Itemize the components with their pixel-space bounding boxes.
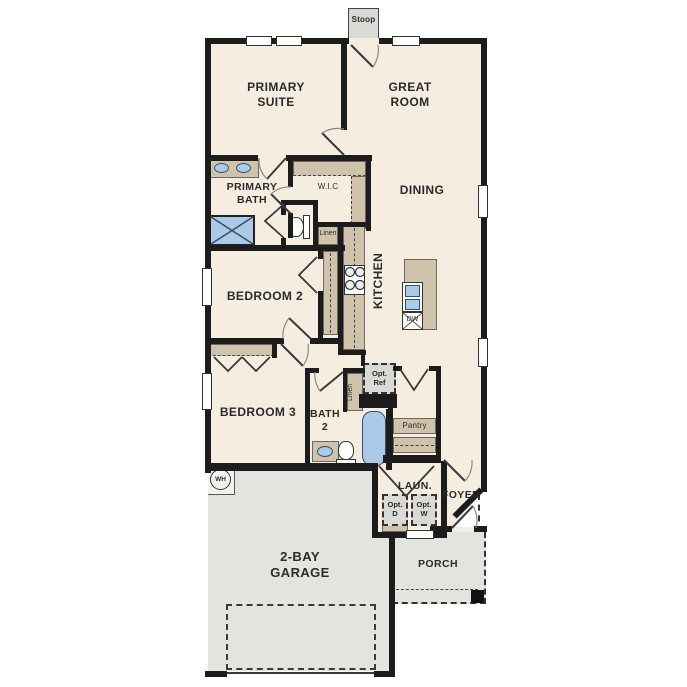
- window: [202, 268, 212, 306]
- room-label-kitchen: KITCHEN: [371, 246, 388, 316]
- island-sink-basin-2: [405, 299, 420, 310]
- garage-door-line: [227, 672, 374, 674]
- vanity-sink-left: [214, 163, 229, 173]
- opt-washer-label: Opt. W: [417, 501, 432, 518]
- wall-segment: [315, 222, 371, 227]
- window: [478, 338, 488, 367]
- wall-segment: [205, 671, 227, 677]
- wall-segment: [338, 225, 343, 350]
- floor-plan: WH Opt. Ref Opt. D Opt. W: [0, 0, 687, 687]
- wall-segment: [286, 155, 372, 161]
- stove: [344, 265, 365, 295]
- room-label-stoop: Stoop: [348, 15, 379, 25]
- optional-washer: Opt. W: [411, 494, 437, 526]
- wall-segment: [481, 38, 487, 492]
- room-label-primary-bath: PRIMARY BATH: [212, 181, 292, 207]
- room-label-garage: 2-BAY GARAGE: [250, 549, 350, 582]
- wall-segment: [361, 350, 365, 366]
- water-heater: WH: [210, 469, 231, 490]
- window: [392, 36, 420, 46]
- toilet-primary-tank: [303, 215, 310, 239]
- room-label-pantry: Pantry: [393, 421, 436, 431]
- room-label-foyer: FOYER: [436, 489, 486, 502]
- closet-label-linen-hall: Linen: [318, 230, 338, 239]
- laundry-threshold: [406, 530, 434, 539]
- wall-segment: [372, 463, 378, 538]
- porch-inner-dashed: [396, 589, 478, 590]
- wall-segment: [389, 532, 395, 677]
- wall-segment: [366, 161, 371, 231]
- wall-segment: [205, 245, 345, 251]
- window: [478, 185, 488, 218]
- optional-refrigerator: Opt. Ref: [363, 363, 396, 394]
- island-sink-basin-1: [405, 285, 420, 297]
- wall-segment: [474, 526, 487, 532]
- bedroom3-closet: [208, 344, 274, 356]
- wall-segment: [318, 291, 323, 343]
- room-label-great-room: GREAT ROOM: [375, 80, 445, 110]
- room-label-bedroom2: BEDROOM 2: [215, 289, 315, 304]
- room-label-wic: W.I.C: [303, 182, 353, 192]
- room-label-bath2: BATH 2: [305, 408, 345, 434]
- toilet-bath2-bowl: [338, 441, 354, 460]
- bedroom2-closet-rod: [330, 253, 331, 333]
- vanity-sink-right: [236, 163, 251, 173]
- wall-segment: [205, 155, 258, 161]
- wall-segment: [305, 368, 319, 373]
- wall-segment: [313, 205, 318, 248]
- wall-segment: [310, 338, 343, 344]
- closet-label-linen-bath: Linen: [347, 374, 363, 410]
- appliance-label-dw: DW: [403, 316, 422, 325]
- wall-segment: [393, 366, 402, 371]
- wic-shelf-top: [293, 161, 366, 176]
- wall-segment: [388, 400, 393, 463]
- pantry-shelf-line: [395, 445, 434, 446]
- water-heater-label: WH: [215, 476, 226, 483]
- wall-segment: [341, 44, 347, 130]
- room-label-porch: PORCH: [408, 558, 468, 571]
- stoop-pad: [348, 8, 379, 42]
- window: [246, 36, 272, 46]
- wall-segment: [288, 213, 293, 238]
- room-label-primary-suite: PRIMARY SUITE: [241, 80, 311, 110]
- stoop-door-gap: [349, 38, 379, 44]
- opt-dryer-label: Opt. D: [388, 501, 403, 518]
- window: [276, 36, 302, 46]
- wall-segment: [374, 671, 395, 677]
- wall-segment: [318, 251, 323, 259]
- wall-segment: [383, 455, 441, 463]
- opt-ref-label: Opt. Ref: [372, 370, 387, 387]
- porch-column: [471, 590, 484, 603]
- wall-segment: [205, 463, 377, 471]
- bath2-sink: [317, 446, 333, 457]
- wall-segment: [436, 366, 441, 463]
- room-label-dining: DINING: [392, 183, 452, 198]
- room-label-bedroom3: BEDROOM 3: [208, 405, 308, 420]
- garage-door-dashed: [226, 604, 376, 670]
- shower: [209, 215, 255, 246]
- wall-segment: [272, 344, 277, 358]
- room-label-laundry: LAUN.: [390, 480, 440, 493]
- optional-dryer: Opt. D: [382, 494, 408, 526]
